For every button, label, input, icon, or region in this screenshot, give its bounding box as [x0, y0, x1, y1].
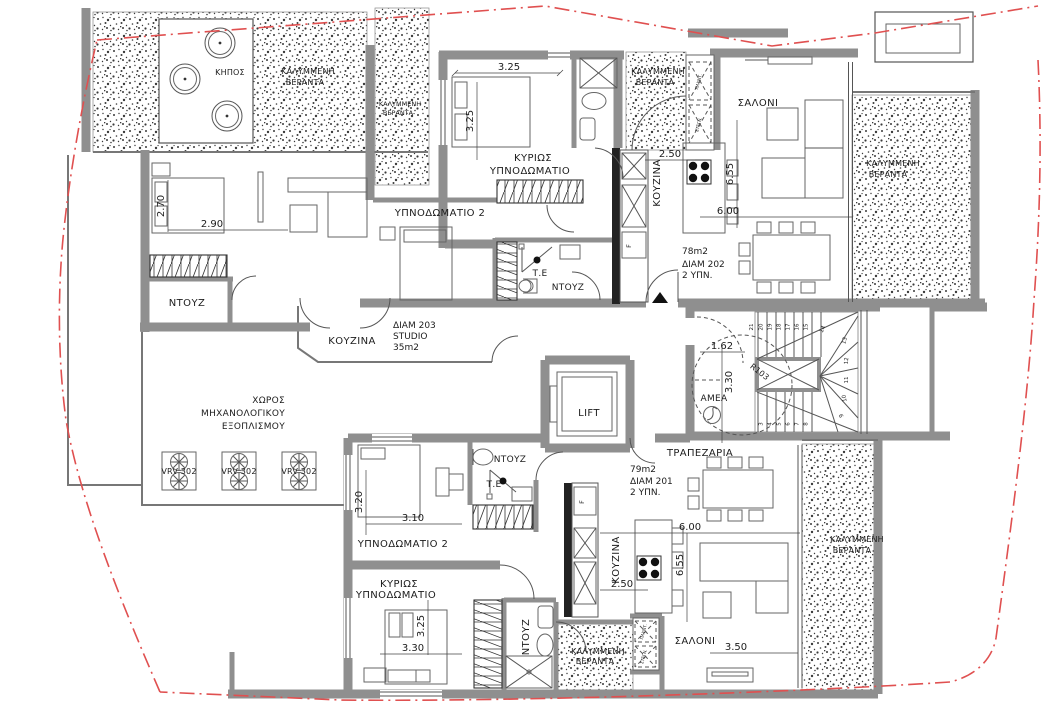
dim-600-bottom: 6.00 [679, 522, 701, 533]
hob-icon [687, 160, 711, 184]
svg-text:21: 21 [749, 324, 755, 331]
label-kitchen-top: ΚΟΥΖΙΝΑ [652, 159, 663, 206]
svg-text:3: 3 [759, 422, 765, 426]
laundry-closet-top [686, 55, 714, 150]
dim-290: 2.90 [201, 219, 223, 230]
dim-655-top: 6.55 [725, 163, 736, 185]
garden-planters [159, 19, 253, 143]
label-apt203-id: ΔΙΑΜ 203 [393, 321, 436, 331]
dim-600-top: 6.00 [717, 206, 739, 217]
dim-325-v-bottom: 3.25 [416, 615, 427, 637]
label-apt201-id: ΔΙΑΜ 201 [630, 477, 673, 487]
dim-320: 3.20 [354, 491, 365, 513]
label-shower-master-bottom: ΝΤΟΥΖ [521, 619, 532, 655]
svg-text:12: 12 [844, 357, 851, 364]
dim-325-h-top: 3.25 [498, 62, 520, 73]
entrance-arrow-icon [652, 292, 668, 303]
shower-tray-icon [580, 58, 617, 88]
hob-icon [637, 556, 661, 580]
dim-270: 2.70 [156, 195, 167, 217]
label-mech-3: ΕΞΟΠΛΙΣΜΟΥ [222, 422, 285, 432]
label-living-top: ΣΑΛΟΝΙ [738, 98, 779, 109]
staircase: 21 20 19 18 17 16 15 14 13 12 11 10 9 3 … [748, 310, 867, 434]
label-vrv-1: VRV 302 [161, 467, 196, 476]
label-veranda-tm-2: ΒΕΡΑΝΤΑ [636, 78, 675, 87]
label-vrv-2: VRV 302 [221, 467, 256, 476]
label-kitchen-studio: ΚΟΥΖΙΝΑ [328, 336, 375, 347]
label-mech-1: ΧΩΡΟΣ [252, 396, 285, 406]
dim-250-bottom: 2.50 [611, 579, 633, 590]
label-apt201-beds: 2 ΥΠΝ. [630, 488, 660, 498]
label-veranda-tr-2: ΒΕΡΑΝΤΑ [869, 170, 908, 179]
label-veranda-tr-1: ΚΑΛΥΜΜΕΝΗ [866, 159, 920, 168]
label-veranda-tl-2: ΒΕΡΑΝΤΑ [286, 78, 325, 87]
label-shower-201: ΝΤΟΥΖ [494, 455, 526, 465]
label-veranda-tl2-2: ΒΕΡΑΝΤΑ [383, 109, 414, 117]
label-dining: ΤΡΑΠΕΖΑΡΙΑ [666, 448, 733, 459]
label-shower-studio: ΝΤΟΥΖ [169, 298, 205, 309]
svg-text:17: 17 [786, 323, 792, 330]
label-veranda-tm-1: ΚΑΛΥΜΜΕΝΗ [631, 67, 685, 76]
dimension-lines [168, 70, 853, 655]
lift [550, 372, 617, 436]
label-amea: ΑΜΕΑ [701, 394, 729, 404]
label-master-top-1: ΚΥΡΙΩΣ [514, 153, 552, 164]
label-veranda-tl2-1: ΚΑΛΥΜΜΕΝΗ [379, 100, 421, 108]
label-apt203-type: STUDIO [393, 332, 427, 342]
dim-330-v: 3.30 [724, 371, 735, 393]
label-shower-202: ΝΤΟΥΖ [552, 283, 584, 293]
dim-250-top: 2.50 [659, 149, 681, 160]
dim-330-bottom: 3.30 [402, 643, 424, 654]
label-living-bottom: ΣΑΛΟΝΙ [675, 636, 716, 647]
label-apt202-id: ΔΙΑΜ 202 [682, 260, 725, 270]
svg-text:5: 5 [777, 422, 783, 426]
label-lift: LIFT [578, 408, 600, 419]
label-veranda-tl-1: ΚΑΛΥΜΜΕΝΗ [281, 67, 335, 76]
wheelchair-icon [704, 407, 721, 424]
label-apt202-area: 78m2 [682, 247, 708, 257]
label-veranda-bm-1: ΚΑΛΥΜΜΕΝΗ [571, 647, 625, 656]
label-veranda-br-2: ΒΕΡΑΝΤΑ [833, 546, 872, 555]
dim-162: 1.62 [711, 341, 733, 352]
dim-655-bottom: 6.55 [675, 554, 686, 576]
label-veranda-bm-2: ΒΕΡΑΝΤΑ [576, 657, 615, 666]
svg-text:11: 11 [844, 377, 850, 384]
label-te-201: Τ.Ε [486, 480, 502, 490]
dim-325-v-top: 3.25 [465, 110, 476, 132]
svg-text:7: 7 [795, 422, 801, 426]
svg-text:18: 18 [777, 323, 783, 330]
floor-plan-canvas: 21 20 19 18 17 16 15 14 13 12 11 10 9 3 … [0, 0, 1041, 715]
label-fridge-top: F [625, 244, 633, 248]
shower-tray-icon [506, 656, 552, 688]
svg-text:20: 20 [759, 323, 765, 330]
label-vrv-3: VRV 302 [281, 467, 316, 476]
label-mech-2: ΜΗΧΑΝΟΛΟΓΙΚΟΥ [201, 409, 285, 419]
label-master-bottom-1: ΚΥΡΙΩΣ [380, 579, 418, 590]
label-apt201-area: 79m2 [630, 465, 656, 475]
label-te-202: Τ.Ε [532, 269, 548, 279]
svg-text:6: 6 [786, 422, 792, 426]
label-bedroom2-bottom: ΥΠΝΟΔΩΜΑΤΙΟ 2 [357, 539, 449, 550]
svg-text:19: 19 [768, 323, 774, 330]
label-apt203-area: 35m2 [393, 343, 419, 353]
dim-310: 3.10 [402, 513, 424, 524]
label-veranda-br-1: ΚΑΛΥΜΜΕΝΗ [830, 535, 884, 544]
label-bedroom2-top: ΥΠΝΟΔΩΜΑΤΙΟ 2 [394, 208, 486, 219]
label-master-bottom-2: ΥΠΝΟΔΩΜΑΤΙΟ [355, 590, 436, 601]
svg-text:16: 16 [795, 323, 801, 330]
svg-text:8: 8 [804, 422, 810, 426]
svg-text:15: 15 [804, 323, 810, 330]
label-master-top-2: ΥΠΝΟΔΩΜΑΤΙΟ [489, 166, 570, 177]
dim-350: 3.50 [725, 642, 747, 653]
label-apt202-beds: 2 ΥΠΝ. [682, 271, 712, 281]
label-garden: ΚΗΠΟΣ [215, 68, 245, 77]
label-kitchen-bottom: ΚΟΥΖΙΝΑ [611, 536, 622, 583]
label-fridge-bottom: F [578, 500, 586, 504]
floor-plan-page: 21 20 19 18 17 16 15 14 13 12 11 10 9 3 … [0, 0, 1041, 715]
